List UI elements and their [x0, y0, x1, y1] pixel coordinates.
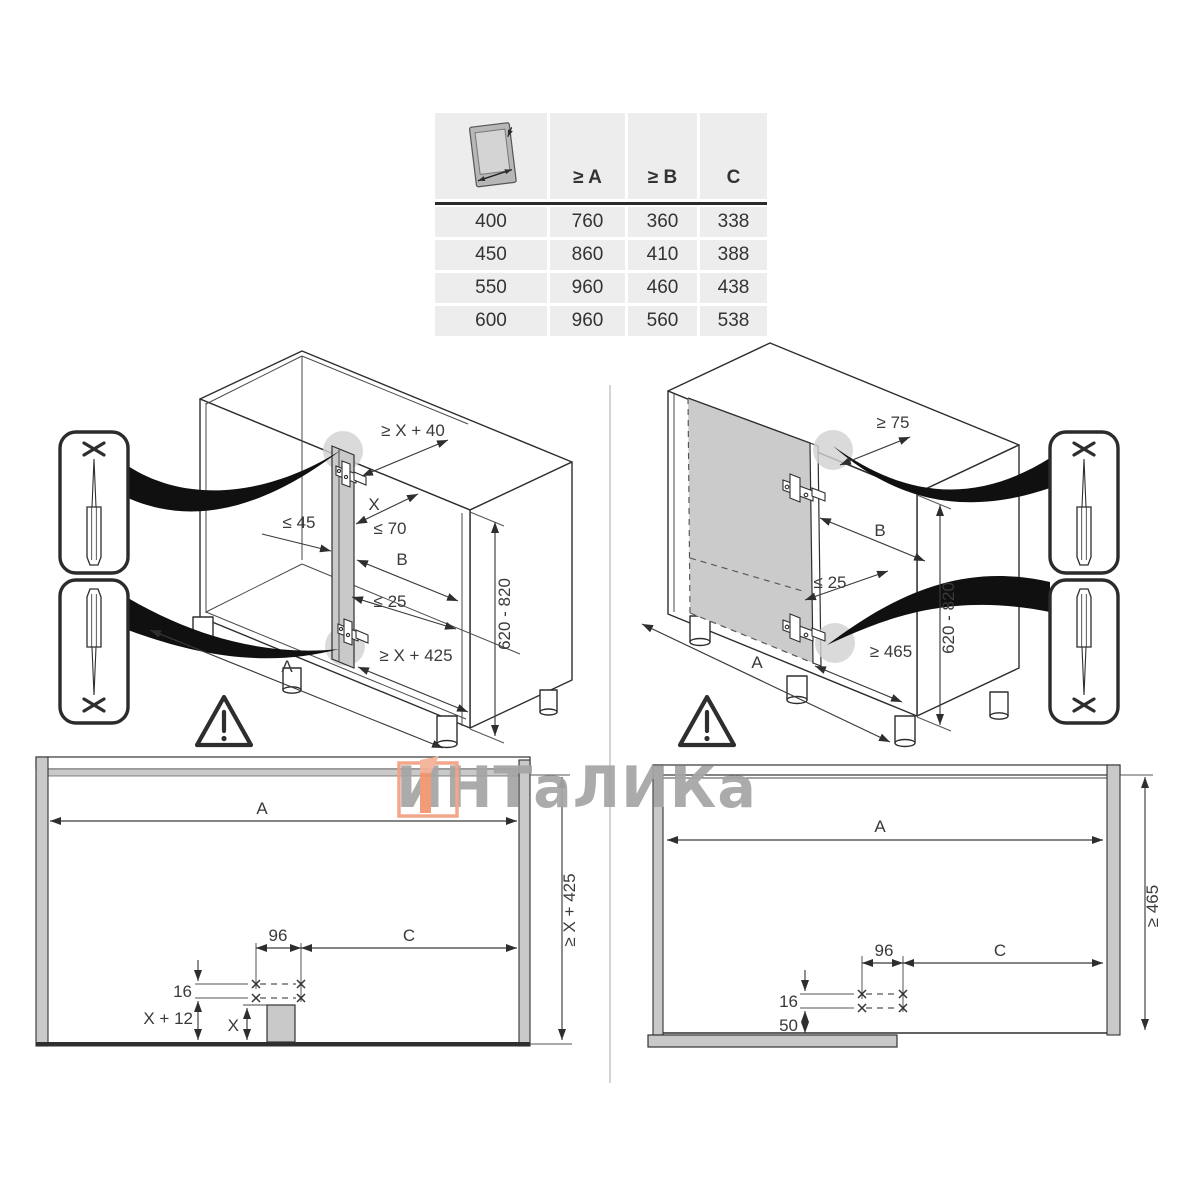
cell-a: 960	[550, 273, 625, 303]
dim-label-16: 16	[779, 992, 798, 1011]
dim-label-96: 96	[269, 926, 288, 945]
dim-label-height-range: 620 - 820	[939, 582, 958, 654]
door-width-icon	[460, 116, 522, 196]
dim-label-max70: ≤ 70	[374, 519, 407, 538]
warning-icon	[197, 697, 251, 745]
table-header-col-b: ≥ B	[628, 113, 697, 199]
dim-label-bottom-clearance: ≥ 465	[870, 642, 912, 661]
cell-size: 400	[435, 207, 547, 237]
page: ≥ A ≥ B C 400 760 360 338 450 860 410 38…	[0, 0, 1200, 1200]
table-header-icon-cell	[435, 113, 547, 199]
dimension-table: ≥ A ≥ B C 400 760 360 338 450 860 410 38…	[435, 113, 767, 339]
header-c-label: C	[727, 167, 741, 189]
table-header-row: ≥ A ≥ B C	[435, 113, 767, 199]
table-header-col-a: ≥ A	[550, 113, 625, 199]
dim-label-max25: ≤ 25	[814, 573, 847, 592]
dim-label-bottom-clearance: ≥ X + 425	[379, 646, 452, 665]
cell-a: 860	[550, 240, 625, 270]
table-row: 400 760 360 338	[435, 207, 767, 237]
cell-a: 760	[550, 207, 625, 237]
dim-label-height-range: 620 - 820	[495, 578, 514, 650]
cell-c: 388	[700, 240, 767, 270]
dim-label-50: 50	[779, 1016, 798, 1035]
cabinet-body	[200, 351, 572, 728]
dim-label-x12: X + 12	[143, 1009, 193, 1028]
header-b-label: ≥ B	[648, 167, 677, 189]
dim-label-max45: ≤ 45	[283, 513, 316, 532]
cell-size: 450	[435, 240, 547, 270]
table-row: 450 860 410 388	[435, 240, 767, 270]
header-a-label: ≥ A	[573, 167, 602, 189]
dim-label-max25: ≤ 25	[374, 592, 407, 611]
cabinet-frame	[648, 765, 1120, 1047]
dim-label-height-min: ≥ X + 425	[560, 873, 579, 946]
dim-label-a: A	[256, 799, 268, 818]
dim-label-x: X	[368, 495, 379, 514]
iso-diagram-right: ≥ 75 B ≤ 25 ≥ 465 A 620 - 820	[615, 330, 1190, 760]
dim-label-x: X	[228, 1016, 239, 1035]
cell-b: 410	[628, 240, 697, 270]
dim-label-a: A	[751, 653, 763, 672]
drill-positions	[195, 980, 305, 1002]
cell-c: 338	[700, 207, 767, 237]
obstacle-block	[243, 1005, 295, 1042]
cabinet-frame	[36, 757, 572, 1047]
iso-diagram-left: ≥ X + 40 X ≤ 70 ≤ 45 B ≤ 25 ≥ X + 425 A …	[30, 330, 610, 760]
cell-b: 360	[628, 207, 697, 237]
dim-label-a: A	[874, 817, 886, 836]
dim-label-a: A	[281, 657, 293, 676]
callout-tools	[60, 432, 128, 723]
drill-positions	[800, 990, 907, 1012]
front-view-left: A ≥ X + 425 96 C 16 X + 12	[25, 750, 610, 1060]
dim-label-b: B	[396, 550, 407, 569]
dim-label-height-min: ≥ 465	[1143, 885, 1162, 927]
dim-label-c: C	[994, 941, 1006, 960]
dim-label-top-clearance: ≥ 75	[877, 413, 910, 432]
center-divider	[609, 385, 611, 1083]
cell-b: 460	[628, 273, 697, 303]
dim-label-c: C	[403, 926, 415, 945]
front-view-right: A ≥ 465 96 C 16 50	[635, 750, 1180, 1060]
warning-icon	[680, 697, 734, 745]
dimensions: A ≥ 465 96 C 16 50	[667, 775, 1162, 1035]
dim-label-top-clearance: ≥ X + 40	[381, 421, 445, 440]
cell-c: 438	[700, 273, 767, 303]
table-header-divider	[435, 202, 767, 205]
dim-label-b: B	[874, 521, 885, 540]
dim-label-96: 96	[875, 941, 894, 960]
table-row: 550 960 460 438	[435, 273, 767, 303]
table-header-col-c: C	[700, 113, 767, 199]
dim-label-16: 16	[173, 982, 192, 1001]
callout-tools	[1050, 432, 1118, 723]
dimensions: A ≥ X + 425 96 C 16 X + 12	[50, 775, 579, 1040]
cell-size: 550	[435, 273, 547, 303]
